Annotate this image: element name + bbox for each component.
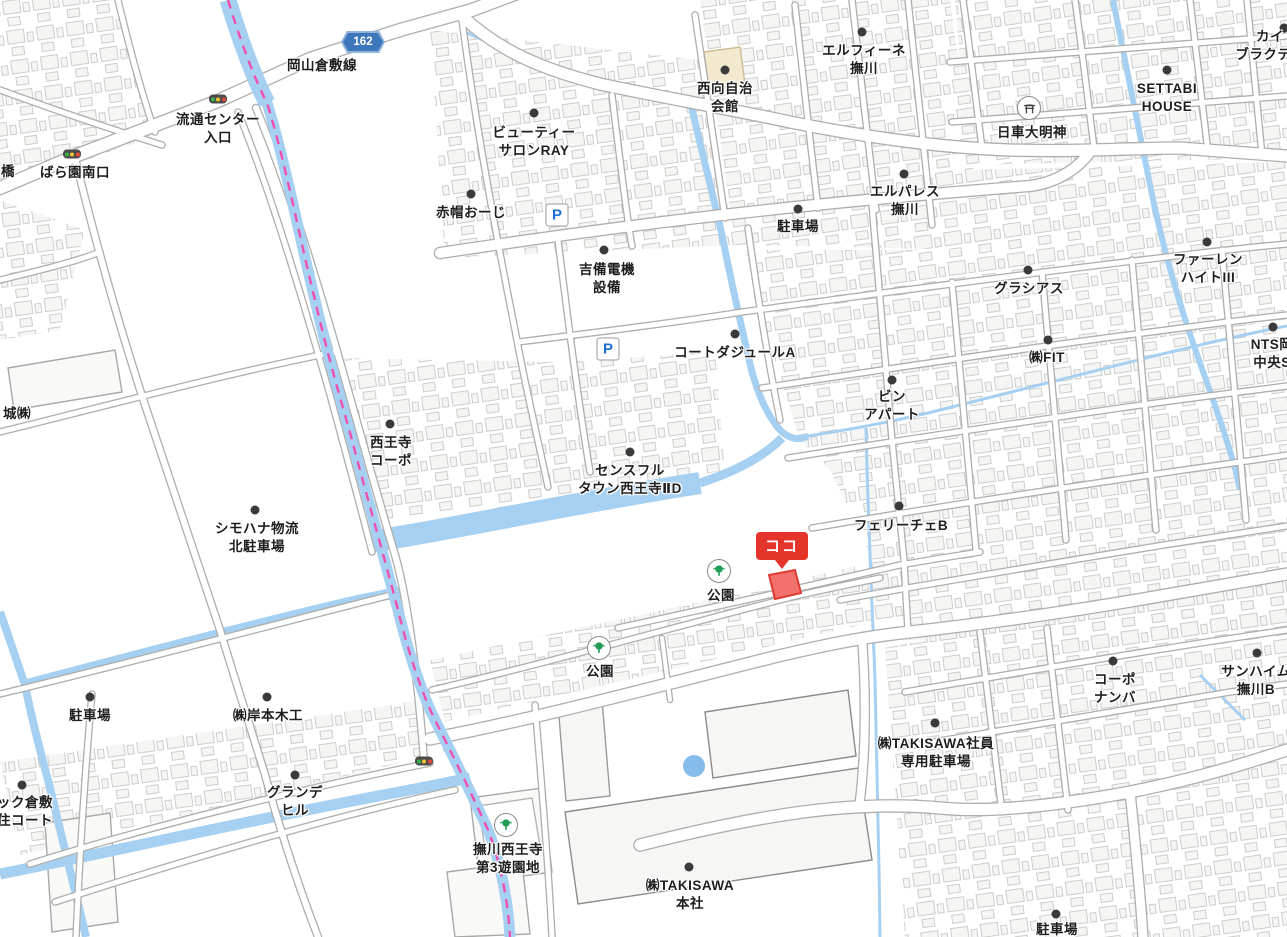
map-label: 西王寺コーポ: [370, 434, 412, 470]
map-label: エルフィーネ撫川: [822, 42, 906, 78]
road: [518, 312, 742, 342]
poi-dot: [600, 246, 609, 255]
poi-dot: [794, 205, 803, 214]
map-label: 赤帽おーじ: [436, 204, 506, 222]
map-label: SETTABIHOUSE: [1137, 80, 1197, 116]
road: [0, 594, 395, 694]
poi-dot: [1044, 336, 1053, 345]
map-label: ㈱TAKISAWA社員専用駐車場: [878, 735, 994, 771]
route-badge-162: 162: [341, 31, 385, 53]
park-icon: [587, 636, 611, 660]
map-label: シモハナ物流北駐車場: [215, 520, 299, 556]
poi-dot: [386, 420, 395, 429]
map-label: 橋: [1, 163, 15, 181]
map-label: 公園: [586, 663, 614, 681]
route-number: 162: [343, 33, 383, 51]
poi-dot: [1163, 66, 1172, 75]
poi-dot: [18, 781, 27, 790]
building: [705, 690, 856, 778]
map-label: コーポナンバ: [1094, 671, 1136, 707]
poi-dot: [626, 448, 635, 457]
poi-dot: [263, 693, 272, 702]
poi-dot: [1052, 910, 1061, 919]
map-label: 駐車場: [1036, 921, 1078, 937]
poi-dot: [1024, 266, 1033, 275]
map-label: 西向自治会館: [697, 80, 753, 116]
poi-dot: [1109, 657, 1118, 666]
map-label: グランデヒル: [267, 784, 323, 820]
map-label: ㈱FIT: [1029, 349, 1065, 367]
map-label: サンハイム撫川B: [1221, 663, 1287, 699]
parking-icon: P: [597, 338, 620, 361]
poi-dot: [530, 109, 539, 118]
here-marker: ココ: [756, 532, 808, 560]
traffic-light-icon: [415, 757, 433, 766]
park-icon: [707, 559, 731, 583]
poi-dot: [888, 376, 897, 385]
map-label: 駐車場: [69, 707, 111, 725]
poi-dot: [931, 719, 940, 728]
map-label: ック倉敷住コート: [0, 794, 53, 830]
map-label: 駐車場: [777, 218, 819, 236]
map-label: 日車大明神: [997, 124, 1067, 142]
road-casing: [238, 112, 372, 552]
map-label: 岡山倉敷線: [287, 57, 357, 75]
map-label: 撫川西王寺第3遊園地: [473, 841, 543, 877]
map-label: コートダジュールA: [674, 344, 796, 362]
poi-dot: [86, 693, 95, 702]
map-label: フェリーチェB: [854, 517, 948, 535]
poi-dot: [251, 506, 260, 515]
waterway: [0, 612, 25, 685]
poi-dot: [900, 170, 909, 179]
map-canvas[interactable]: PP橋ばら園南口流通センター入口岡山倉敷線ビューティーサロンRAY赤帽おーじ吉備…: [0, 0, 1287, 937]
poi-dot: [1269, 323, 1278, 332]
poi-dot: [731, 330, 740, 339]
map-label: 吉備電機設備: [579, 261, 635, 297]
map-label: ㈱岸本木工: [233, 707, 303, 725]
map-label: ㈱TAKISAWA本社: [646, 877, 734, 913]
traffic-light-icon: [209, 95, 227, 104]
map-label: カイブラクティ: [1235, 28, 1287, 64]
map-label: ビンアパート: [864, 388, 920, 424]
map-label: 公園: [707, 587, 735, 605]
pond: [683, 755, 705, 777]
map-label: 流通センター入口: [176, 111, 260, 147]
poi-dot: [721, 66, 730, 75]
map-label: ばら園南口: [40, 164, 110, 182]
map-label: 城㈱: [3, 405, 31, 423]
poi-dot: [1203, 238, 1212, 247]
map-label: センスフルタウン西王寺ⅡD: [578, 462, 682, 498]
torii-shrine-icon: [1017, 96, 1041, 120]
poi-dot: [858, 28, 867, 37]
map-label: NTS岡中央S: [1251, 336, 1287, 372]
parking-icon: P: [546, 204, 569, 227]
poi-dot: [467, 190, 476, 199]
poi-dot: [685, 863, 694, 872]
map-label: ビューティーサロンRAY: [492, 124, 575, 160]
map-label: エルパレス撫川: [870, 183, 940, 219]
traffic-light-icon: [63, 150, 81, 159]
map-label: ファーレンハイトIII: [1173, 251, 1243, 287]
poi-dot: [1253, 649, 1262, 658]
building: [8, 350, 122, 410]
highlighted-destination-building: [769, 570, 801, 599]
map-label: グラシアス: [994, 280, 1064, 298]
poi-dot: [291, 771, 300, 780]
park-icon: [494, 813, 518, 837]
poi-dot: [895, 502, 904, 511]
